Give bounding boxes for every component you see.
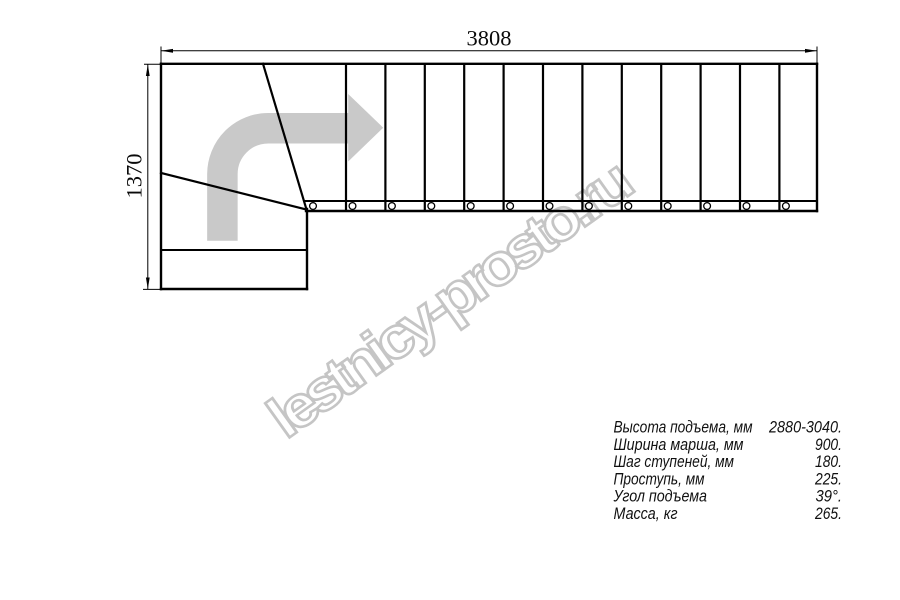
svg-text:225.: 225. [814,469,842,488]
svg-text:Шаг ступеней, мм: Шаг ступеней, мм [614,452,735,471]
svg-text:Угол подъема: Угол подъема [613,487,707,506]
svg-text:1370: 1370 [122,154,147,199]
svg-text:Высота подъема, мм: Высота подъема, мм [614,418,753,437]
svg-text:lestnicy-prosto.ru: lestnicy-prosto.ru [256,148,643,450]
svg-text:Ширина марша, мм: Ширина марша, мм [614,435,744,454]
svg-text:Проступь, мм: Проступь, мм [614,469,705,488]
svg-text:2880-3040.: 2880-3040. [768,418,842,437]
svg-text:265.: 265. [814,504,842,523]
svg-text:180.: 180. [815,452,842,471]
svg-text:Масса, кг: Масса, кг [614,504,678,523]
svg-text:39°.: 39°. [816,487,843,506]
svg-text:3808: 3808 [467,26,512,51]
svg-text:900.: 900. [815,435,842,454]
